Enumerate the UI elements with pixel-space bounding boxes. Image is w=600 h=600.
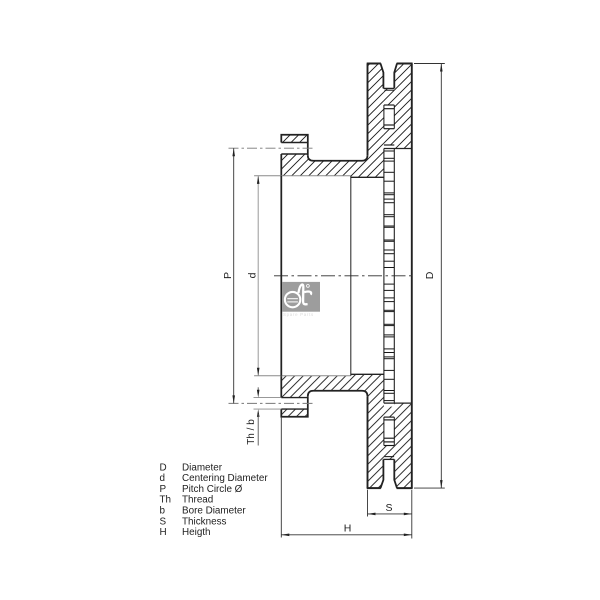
svg-text:Spare Parts: Spare Parts [283,312,314,317]
svg-text:H: H [344,523,352,535]
svg-text:S: S [160,516,167,527]
svg-text:b: b [160,506,166,517]
svg-text:D: D [160,462,167,473]
svg-text:d: d [160,473,166,484]
svg-text:Th / b: Th / b [246,419,257,445]
svg-text:P: P [222,272,234,279]
svg-text:Thread: Thread [182,495,213,506]
svg-text:S: S [385,502,392,514]
svg-text:Thickness: Thickness [182,516,227,527]
svg-text:Heigth: Heigth [182,527,211,538]
svg-text:Bore Diameter: Bore Diameter [182,506,246,517]
svg-text:d: d [247,272,259,278]
svg-text:P: P [160,484,167,495]
svg-text:Th: Th [160,495,172,506]
svg-text:H: H [160,527,167,538]
svg-text:Centering Diameter: Centering Diameter [182,473,268,484]
svg-text:D: D [424,271,436,279]
svg-text:Diameter: Diameter [182,462,223,473]
svg-text:Pitch Circle Ø: Pitch Circle Ø [182,484,243,495]
